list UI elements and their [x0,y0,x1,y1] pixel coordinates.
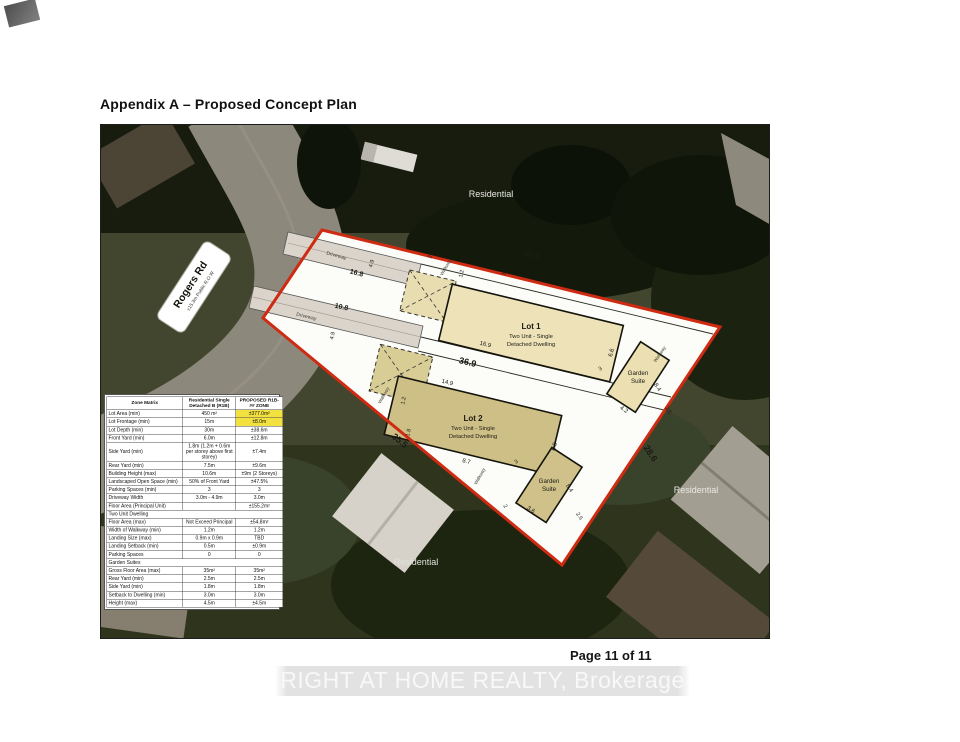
zone-matrix-r1b-value: 0.9m x 0.9m [183,534,236,542]
document-page: Appendix A – Proposed Concept Plan [0,0,960,742]
zone-matrix-r1b-value: 1.8m [183,583,236,591]
lot2-title: Lot 2 [463,414,483,423]
zone-matrix-row: Side Yard (min)1.8m (1.2m + 0.6m per sto… [107,442,283,461]
zone-matrix-row-label: Landscaped Open Space (min) [107,478,183,486]
zone-matrix-r1b-value: 35m² [183,567,236,575]
zone-matrix-r1b-value: 3.0m - 4.9m [183,494,236,502]
zone-matrix-r1b-value: Not Exceed Principal [183,518,236,526]
zone-matrix-row-label: Setback to Dwelling (min) [107,591,183,599]
zone-matrix-proposed-value: ±9.6m [236,462,283,470]
zone-matrix-row: Rear Yard (min)7.5m±9.6m [107,462,283,470]
zone-matrix-proposed-value: ±4.5m [236,599,283,607]
zone-matrix-col-proposed: PROPOSED R1B-## ZONE [236,397,283,410]
zone-matrix-row: Building Height (max)10.6m±9m (2 Storeys… [107,470,283,478]
zone-matrix-row-label: Driveway Width [107,494,183,502]
zone-matrix-r1b-value: 2.5m [183,575,236,583]
zone-matrix-row: Lot Area (min)450 m²±377.0m² [107,410,283,418]
garden-suite-2-label-line1: Garden [539,478,560,485]
zone-matrix-row-label: Side Yard (min) [107,583,183,591]
zone-matrix-proposed-value: ±9m (2 Storeys) [236,470,283,478]
zone-matrix-proposed-value: 0 [236,551,283,559]
residential-label-right: Residential [674,485,719,495]
garden-suite-1-label-line2: Suite [631,378,646,385]
zone-matrix-row: Height (max)4.5m±4.5m [107,599,283,607]
zone-matrix-row: Parking Spaces (min)33 [107,486,283,494]
page-number: Page 11 of 11 [570,648,652,663]
residential-label-top: Residential [469,189,514,199]
zone-matrix-proposed-value: 35m² [236,567,283,575]
zone-matrix-table: Zone Matrix Residential Single Detached … [107,397,284,608]
garden-suite-2-label-line2: Suite [542,486,557,493]
zone-matrix-section-label: Garden Suites [107,559,283,567]
zone-matrix-r1b-value: 15m [183,418,236,426]
zone-matrix-r1b-value: 3 [183,486,236,494]
zone-matrix-r1b-value: 3.0m [183,591,236,599]
zone-matrix-row: Parking Spaces00 [107,551,283,559]
zone-matrix-r1b-value: 0.5m [183,542,236,550]
zone-matrix-body: Lot Area (min)450 m²±377.0m²Lot Frontage… [107,410,283,607]
zone-matrix-row-label: Lot Depth (min) [107,426,183,434]
zone-matrix-section-row: Two Unit Dwelling [107,510,283,518]
zone-matrix-row: Rear Yard (min)2.5m2.5m [107,575,283,583]
zone-matrix-row: Driveway Width3.0m - 4.9m3.0m [107,494,283,502]
zone-matrix-proposed-value: ±7.4m [236,442,283,461]
zone-matrix-row: Landing Size (max)0.9m x 0.9mTBD [107,534,283,542]
zone-matrix-proposed-value: 2.5m [236,575,283,583]
zone-matrix-row-label: Lot Frontage (min) [107,418,183,426]
lot1-title: Lot 1 [521,322,541,331]
zone-matrix-section-label: Two Unit Dwelling [107,510,283,518]
zone-matrix-row: Gross Floor Area (max)35m²35m² [107,567,283,575]
zone-matrix-col-r1b: Residential Single Detached B (R1B) [183,397,236,410]
zone-matrix-r1b-value: 0 [183,551,236,559]
zone-matrix-row-label: Parking Spaces [107,551,183,559]
zone-matrix-row: Width of Walkway (min)1.2m1.2m [107,526,283,534]
zone-matrix-row-label: Landing Setback (min) [107,542,183,550]
residential-label-bottom: Residential [394,557,439,567]
zone-matrix-section-row: Garden Suites [107,559,283,567]
zone-matrix-proposed-value: ±155.2m² [236,502,283,510]
zone-matrix-r1b-value: 1.2m [183,526,236,534]
zone-matrix-row: Landscaped Open Space (min)50% of Front … [107,478,283,486]
zone-matrix-r1b-value: 7.5m [183,462,236,470]
zone-matrix-row-label: Landing Size (max) [107,534,183,542]
page-title: Appendix A – Proposed Concept Plan [100,96,357,112]
zone-matrix-row-label: Side Yard (min) [107,442,183,461]
zone-matrix-proposed-value: ±377.0m² [236,410,283,418]
zone-matrix-row: Landing Setback (min)0.5m±0.9m [107,542,283,550]
zone-matrix-r1b-value: 10.6m [183,470,236,478]
garden-suite-1-label-line1: Garden [628,370,649,377]
zone-matrix-row-label: Rear Yard (min) [107,462,183,470]
brokerage-watermark: RIGHT AT HOME REALTY, Brokerage [275,666,690,696]
zone-matrix-row-label: Height (max) [107,599,183,607]
scan-artifact [4,0,40,28]
zone-matrix-header-row: Zone Matrix Residential Single Detached … [107,397,283,410]
zone-matrix-proposed-value: ±0.9m [236,542,283,550]
zone-matrix-proposed-value: ±12.8m [236,434,283,442]
zone-matrix-proposed-value: 3 [236,486,283,494]
zone-matrix-row-label: Front Yard (min) [107,434,183,442]
zone-matrix-proposed-value: 3.0m [236,591,283,599]
zone-matrix-row-label: Floor Area (Principal Unit) [107,502,183,510]
zone-matrix-row: Side Yard (min)1.8m1.8m [107,583,283,591]
zone-matrix-proposed-value: ±8.0m [236,418,283,426]
zone-matrix-row-label: Floor Area (max) [107,518,183,526]
zone-matrix-r1b-value [183,502,236,510]
zone-matrix-r1b-value: 30m [183,426,236,434]
zone-matrix-r1b-value: 450 m² [183,410,236,418]
zone-matrix-row: Floor Area (Principal Unit)±155.2m² [107,502,283,510]
zone-matrix-row: Lot Depth (min)30m±38.6m [107,426,283,434]
zone-matrix-row-label: Parking Spaces (min) [107,486,183,494]
zone-matrix-proposed-value: TBD [236,534,283,542]
zone-matrix-row-label: Lot Area (min) [107,410,183,418]
zone-matrix-proposed-value: ±38.6m [236,426,283,434]
lot1-subtitle-2: Detached Dwelling [507,342,555,348]
zone-matrix-proposed-value: ±47.5% [236,478,283,486]
lot2-subtitle-2: Detached Dwelling [449,434,497,440]
zone-matrix-row-label: Building Height (max) [107,470,183,478]
zone-matrix-proposed-value: 1.2m [236,526,283,534]
zone-matrix-row: Setback to Dwelling (min)3.0m3.0m [107,591,283,599]
lot2-subtitle-1: Two Unit - Single [451,426,495,432]
zone-matrix-proposed-value: 3.0m [236,494,283,502]
zone-matrix: Zone Matrix Residential Single Detached … [104,394,280,610]
zone-matrix-proposed-value: 1.8m [236,583,283,591]
zone-matrix-title: Zone Matrix [107,397,183,410]
zone-matrix-row-label: Rear Yard (min) [107,575,183,583]
zone-matrix-proposed-value: ±54.8m² [236,518,283,526]
zone-matrix-r1b-value: 50% of Front Yard [183,478,236,486]
zone-matrix-r1b-value: 4.5m [183,599,236,607]
lot1-subtitle-1: Two Unit - Single [509,334,553,340]
zone-matrix-row-label: Gross Floor Area (max) [107,567,183,575]
zone-matrix-row: Front Yard (min)6.0m±12.8m [107,434,283,442]
zone-matrix-r1b-value: 6.0m [183,434,236,442]
zone-matrix-row: Lot Frontage (min)15m±8.0m [107,418,283,426]
zone-matrix-r1b-value: 1.8m (1.2m + 0.6m per storey above first… [183,442,236,461]
zone-matrix-row-label: Width of Walkway (min) [107,526,183,534]
zone-matrix-row: Floor Area (max)Not Exceed Principal±54.… [107,518,283,526]
